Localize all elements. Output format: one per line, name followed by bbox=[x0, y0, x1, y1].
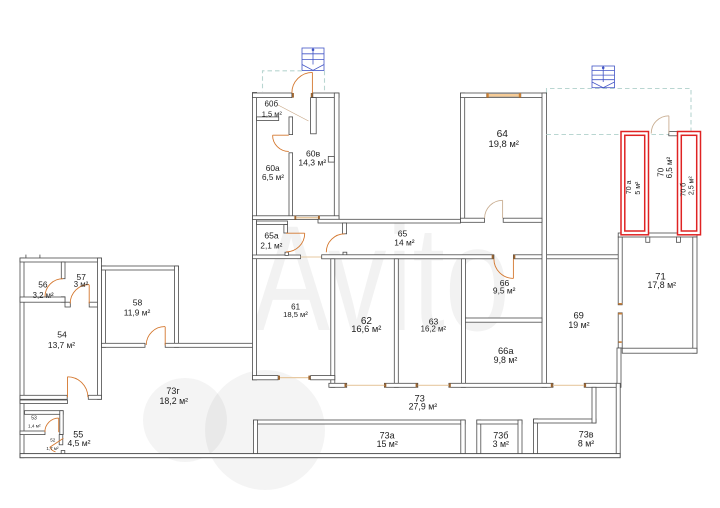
svg-text:5 м²: 5 м² bbox=[635, 181, 642, 195]
svg-text:70 а: 70 а bbox=[626, 180, 633, 194]
svg-text:16,6 м²: 16,6 м² bbox=[351, 324, 381, 334]
svg-text:3,2 м²: 3,2 м² bbox=[33, 291, 54, 300]
svg-text:9,8 м²: 9,8 м² bbox=[494, 355, 518, 365]
svg-text:14 м²: 14 м² bbox=[394, 237, 414, 247]
svg-text:1,5 м²: 1,5 м² bbox=[262, 109, 283, 118]
svg-text:18,2 м²: 18,2 м² bbox=[160, 396, 189, 406]
svg-text:2,1 м²: 2,1 м² bbox=[260, 241, 282, 250]
svg-text:60а: 60а bbox=[266, 163, 280, 173]
svg-text:6,5 м²: 6,5 м² bbox=[665, 157, 674, 179]
svg-text:60б: 60б bbox=[265, 100, 279, 109]
svg-text:18,5 м²: 18,5 м² bbox=[283, 310, 308, 319]
svg-text:16,2 м²: 16,2 м² bbox=[421, 325, 447, 334]
svg-text:19,8 м²: 19,8 м² bbox=[488, 138, 518, 149]
svg-text:73г: 73г bbox=[166, 386, 180, 396]
svg-text:11,9 м²: 11,9 м² bbox=[124, 308, 151, 318]
svg-text:56: 56 bbox=[38, 280, 48, 290]
svg-text:4,5 м²: 4,5 м² bbox=[67, 438, 90, 448]
svg-text:58: 58 bbox=[133, 298, 143, 308]
svg-text:70 б: 70 б bbox=[679, 183, 687, 197]
svg-text:3 м²: 3 м² bbox=[74, 280, 89, 289]
svg-text:6,5 м²: 6,5 м² bbox=[262, 173, 284, 182]
svg-text:17,8 м²: 17,8 м² bbox=[648, 280, 677, 290]
svg-text:14,3 м²: 14,3 м² bbox=[298, 157, 326, 167]
svg-text:19 м²: 19 м² bbox=[568, 320, 589, 330]
svg-text:53: 53 bbox=[31, 416, 37, 422]
svg-text:1,4 м²: 1,4 м² bbox=[28, 423, 41, 428]
svg-text:3 м²: 3 м² bbox=[493, 439, 509, 449]
svg-text:13,7 м²: 13,7 м² bbox=[48, 340, 75, 350]
svg-text:15 м²: 15 м² bbox=[377, 439, 398, 449]
svg-text:1,7 м²: 1,7 м² bbox=[46, 446, 59, 451]
svg-text:65а: 65а bbox=[264, 230, 279, 240]
svg-text:54: 54 bbox=[57, 330, 67, 340]
svg-text:27,9 м²: 27,9 м² bbox=[409, 401, 438, 411]
svg-text:2,5 м²: 2,5 м² bbox=[689, 176, 696, 195]
svg-text:9,5 м²: 9,5 м² bbox=[493, 286, 516, 296]
svg-text:52: 52 bbox=[50, 437, 56, 442]
svg-text:8 м²: 8 м² bbox=[578, 439, 594, 449]
